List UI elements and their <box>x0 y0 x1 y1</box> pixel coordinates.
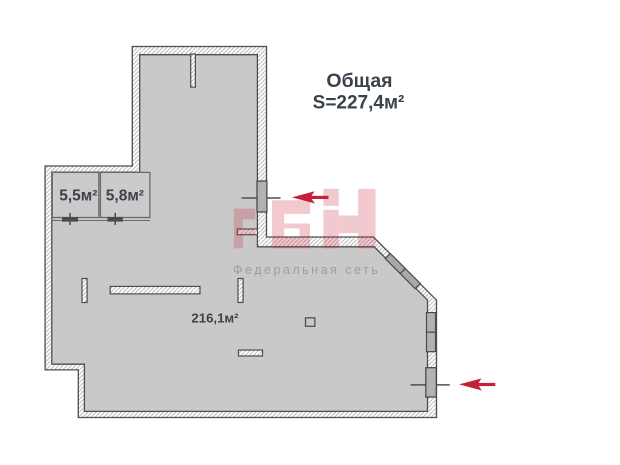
svg-text:S=227,4м²: S=227,4м² <box>313 93 405 114</box>
svg-text:Федеральная сеть: Федеральная сеть <box>233 263 380 277</box>
svg-text:5,8м²: 5,8м² <box>106 188 144 205</box>
svg-text:216,1м²: 216,1м² <box>191 311 239 326</box>
svg-text:Общая: Общая <box>326 70 392 92</box>
svg-text:5,5м²: 5,5м² <box>59 188 97 205</box>
